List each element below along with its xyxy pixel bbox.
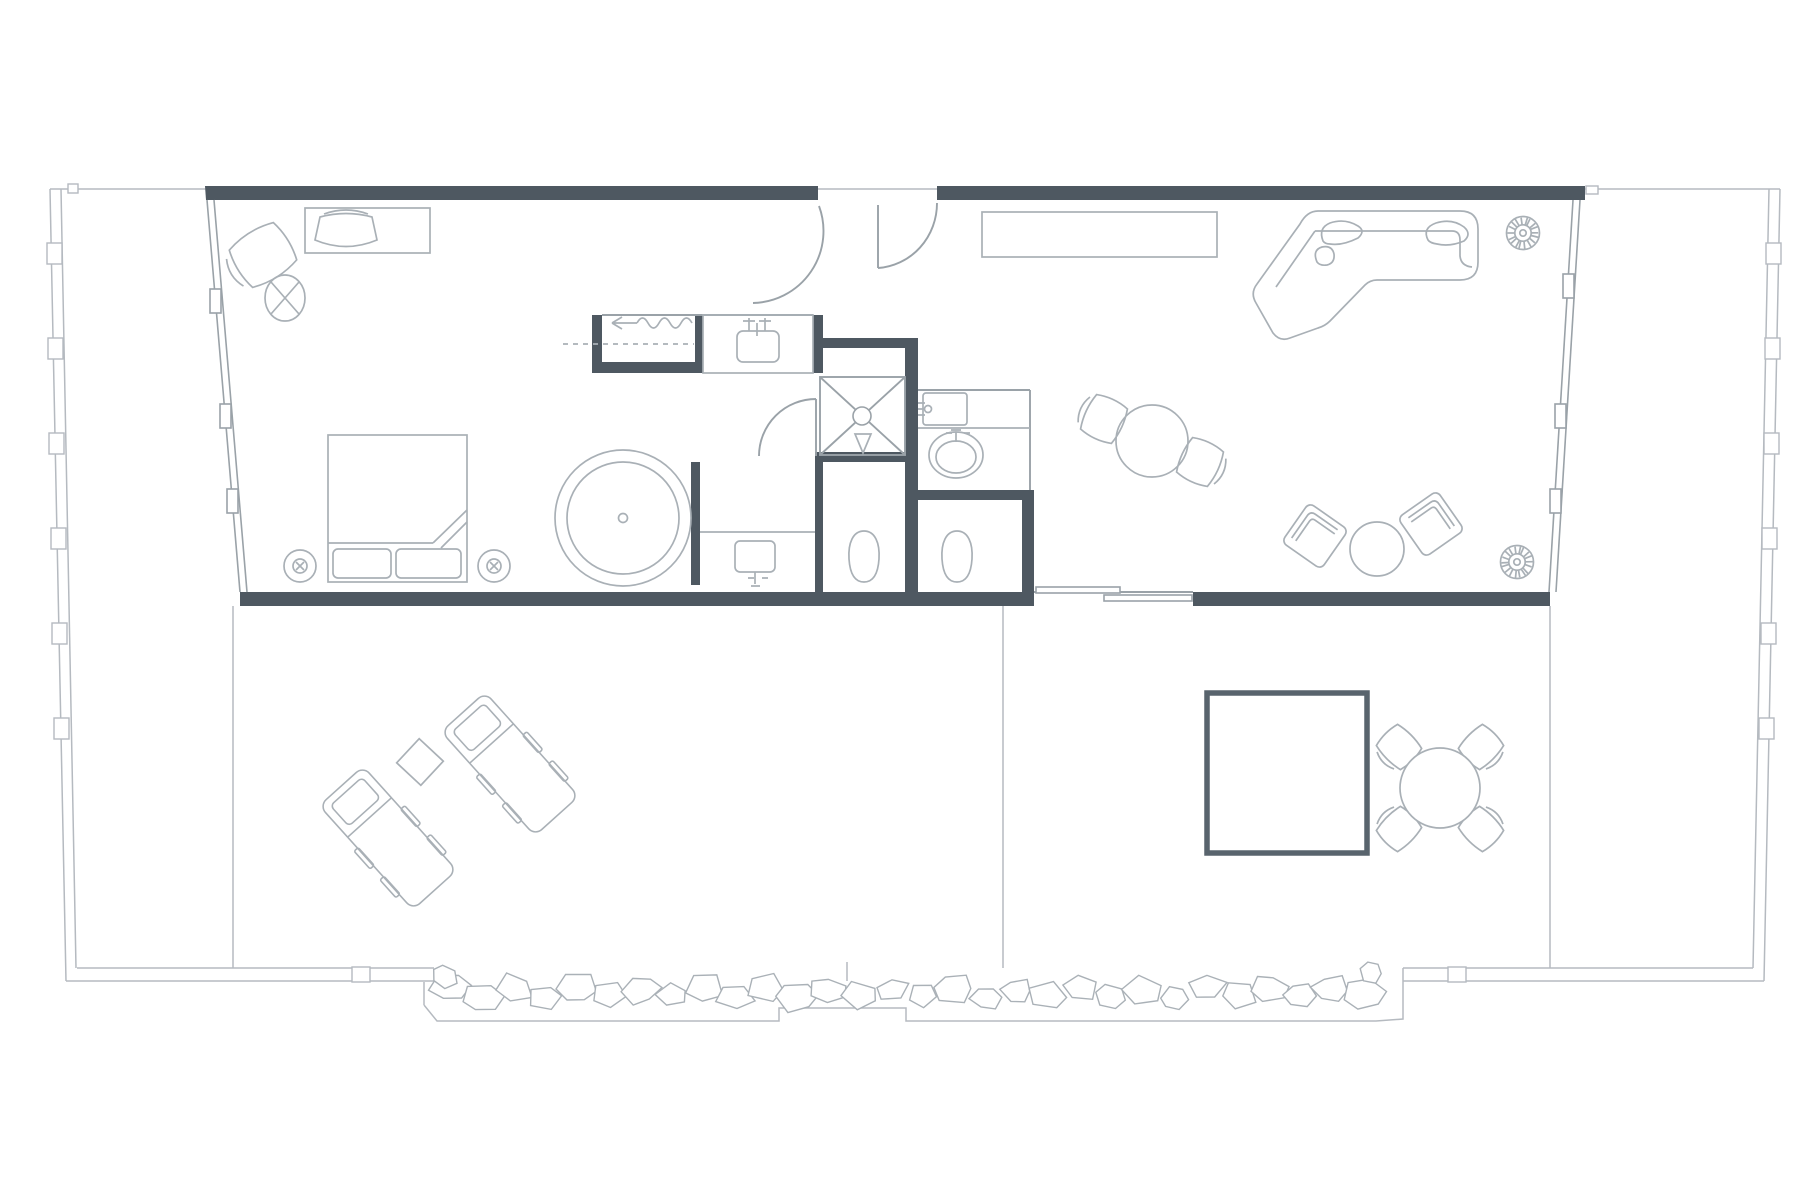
lounge-chair: [1398, 491, 1465, 558]
corner-sofa: [1253, 211, 1478, 339]
deck: [316, 689, 1510, 912]
edge-tick: [48, 338, 63, 359]
desk-chair: [315, 210, 377, 247]
pebble: [1360, 962, 1381, 983]
wall-cabinet: [923, 393, 967, 425]
clothes-wave: [637, 318, 692, 328]
round-bathtub: [555, 450, 691, 586]
living-window-wall-outer: [1549, 200, 1573, 592]
pebble: [1063, 975, 1096, 999]
edge-tick: [1759, 718, 1774, 739]
sofa-cushion: [1426, 221, 1468, 245]
lounger-headrest: [452, 703, 502, 752]
shower-drain: [853, 407, 871, 425]
edge-tick: [1764, 433, 1779, 454]
pebble: [1029, 982, 1067, 1008]
stone-border: [424, 962, 1403, 1021]
edge-tick: [1766, 243, 1781, 264]
pillow: [396, 549, 461, 578]
edge-tick: [1762, 528, 1777, 549]
plants: [1501, 217, 1540, 579]
sofa-back-line: [1276, 231, 1472, 287]
round-side-table: [265, 275, 305, 321]
floor-plan-page: [0, 0, 1800, 1200]
edge-tick: [54, 718, 69, 739]
living-window-wall-inner: [1556, 200, 1580, 592]
edge-tick: [47, 243, 62, 264]
window-mullion: [1550, 489, 1561, 513]
dining-chair: [1173, 434, 1232, 492]
basin-nook-wall: [905, 490, 1034, 500]
sun-lounger: [316, 763, 460, 912]
faucet-icon: [748, 572, 768, 586]
bed-frame: [328, 435, 467, 582]
sliding-door-panel: [1036, 587, 1120, 593]
shower-head-icon: [855, 434, 871, 453]
pebble: [1122, 975, 1162, 1004]
lounge-set: [1282, 491, 1465, 576]
bathroom: [555, 315, 1030, 586]
outdoor-table: [1400, 748, 1480, 828]
potted-plant: [1501, 546, 1534, 579]
sideboard: [982, 212, 1217, 257]
pebble: [686, 975, 723, 1001]
plunge-pool: [1207, 693, 1367, 853]
edge-tick: [51, 528, 66, 549]
pebble: [934, 975, 971, 1002]
blanket-fold: [433, 510, 467, 548]
edge-tick: [352, 967, 370, 982]
toilet-partition-wall: [815, 452, 823, 592]
bedroom: [218, 208, 510, 582]
sofa-cushion: [1322, 221, 1362, 244]
pebble: [594, 983, 627, 1008]
armchair: [218, 218, 302, 297]
lounger-headrest: [330, 777, 380, 826]
pebble: [1223, 983, 1256, 1009]
vanity-sink-top: [737, 331, 779, 362]
pebble: [1189, 975, 1227, 997]
bedside-lamp: [478, 550, 510, 582]
entry-door-left-swing: [753, 206, 823, 303]
entry-door-right: [878, 203, 937, 268]
sun-lounger: [438, 689, 582, 838]
square-side-table: [397, 739, 444, 786]
living-room: [982, 211, 1540, 579]
pebble: [1161, 987, 1189, 1010]
desk: [305, 208, 430, 253]
pebble: [811, 979, 846, 1002]
edge-tick: [1448, 967, 1466, 982]
pebble: [877, 980, 909, 999]
pebble: [910, 985, 937, 1007]
window-mullion: [210, 289, 221, 313]
bathtub-drain: [619, 514, 628, 523]
vanity-sink-bottom: [735, 541, 775, 572]
outdoor-dining-set: [1370, 722, 1510, 855]
pebble: [1251, 977, 1289, 1002]
window-mullion: [227, 489, 238, 513]
hallway-wall: [905, 338, 918, 592]
sliding-door-panel: [1104, 595, 1192, 601]
living-wall-stub: [1022, 490, 1034, 606]
tub-wall-stub: [691, 462, 700, 585]
pebble: [969, 989, 1002, 1009]
lounge-chair: [1282, 503, 1349, 570]
potted-plant: [1507, 217, 1540, 250]
pebble: [1000, 979, 1030, 1001]
edge-tick: [52, 623, 67, 644]
bedside-lamp: [284, 550, 316, 582]
bedroom-window-wall-outer: [207, 200, 240, 592]
toilet: [942, 531, 972, 582]
bedroom-window-wall-inner: [214, 200, 247, 592]
double-bed: [328, 435, 467, 582]
pebble: [1096, 984, 1126, 1008]
pebble: [1344, 979, 1386, 1009]
direction-arrow: [612, 317, 637, 329]
corner-marker-top-left: [68, 184, 78, 193]
pebble: [621, 978, 662, 1005]
sofa-cushion: [1315, 247, 1334, 266]
window-mullion: [1563, 274, 1574, 298]
shower-door-swing: [759, 399, 816, 456]
stone-band: [429, 962, 1387, 1013]
window-mullion: [1555, 404, 1566, 428]
wall-top-right: [937, 186, 1585, 200]
edge-tick: [1765, 338, 1780, 359]
wall-top-left: [205, 186, 818, 200]
round-bathtub-inner: [567, 462, 679, 574]
floor-plan-drawing: [0, 0, 1800, 1200]
dining-chair: [1072, 389, 1131, 447]
edge-tick: [49, 433, 64, 454]
pillow: [333, 549, 391, 578]
round-coffee-table: [1350, 522, 1404, 576]
toilet: [849, 531, 879, 582]
shower-wall-top: [818, 338, 918, 348]
edge-tick: [1761, 623, 1776, 644]
window-mullion: [220, 404, 231, 428]
corner-marker-top-right: [1586, 186, 1598, 194]
dining-set: [1072, 389, 1232, 493]
closet-wall-bottom: [592, 362, 703, 373]
window-walls: [207, 200, 1580, 592]
wall-bottom-right: [1193, 592, 1550, 606]
wall-bottom-left: [240, 592, 1034, 606]
